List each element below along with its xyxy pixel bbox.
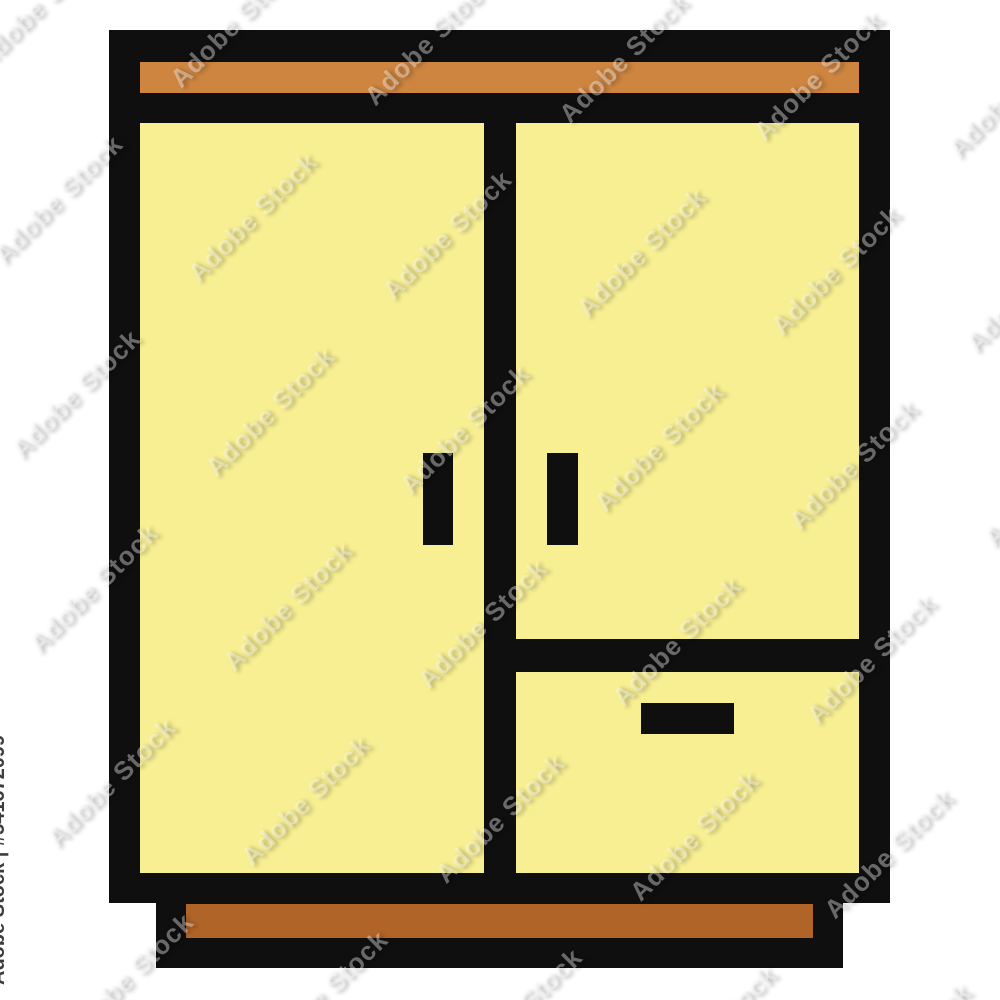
wardrobe-right-door-handle	[547, 453, 578, 545]
wardrobe-icon	[0, 0, 1000, 1000]
wardrobe-base-trim	[186, 904, 813, 938]
wardrobe-top-trim	[140, 62, 859, 93]
wardrobe-right-door	[516, 123, 859, 639]
wardrobe-left-door-handle	[423, 453, 453, 545]
stock-image-canvas: Adobe StockAdobe StockAdobe StockAdobe S…	[0, 0, 1000, 1000]
wardrobe-drawer-handle	[641, 703, 734, 734]
